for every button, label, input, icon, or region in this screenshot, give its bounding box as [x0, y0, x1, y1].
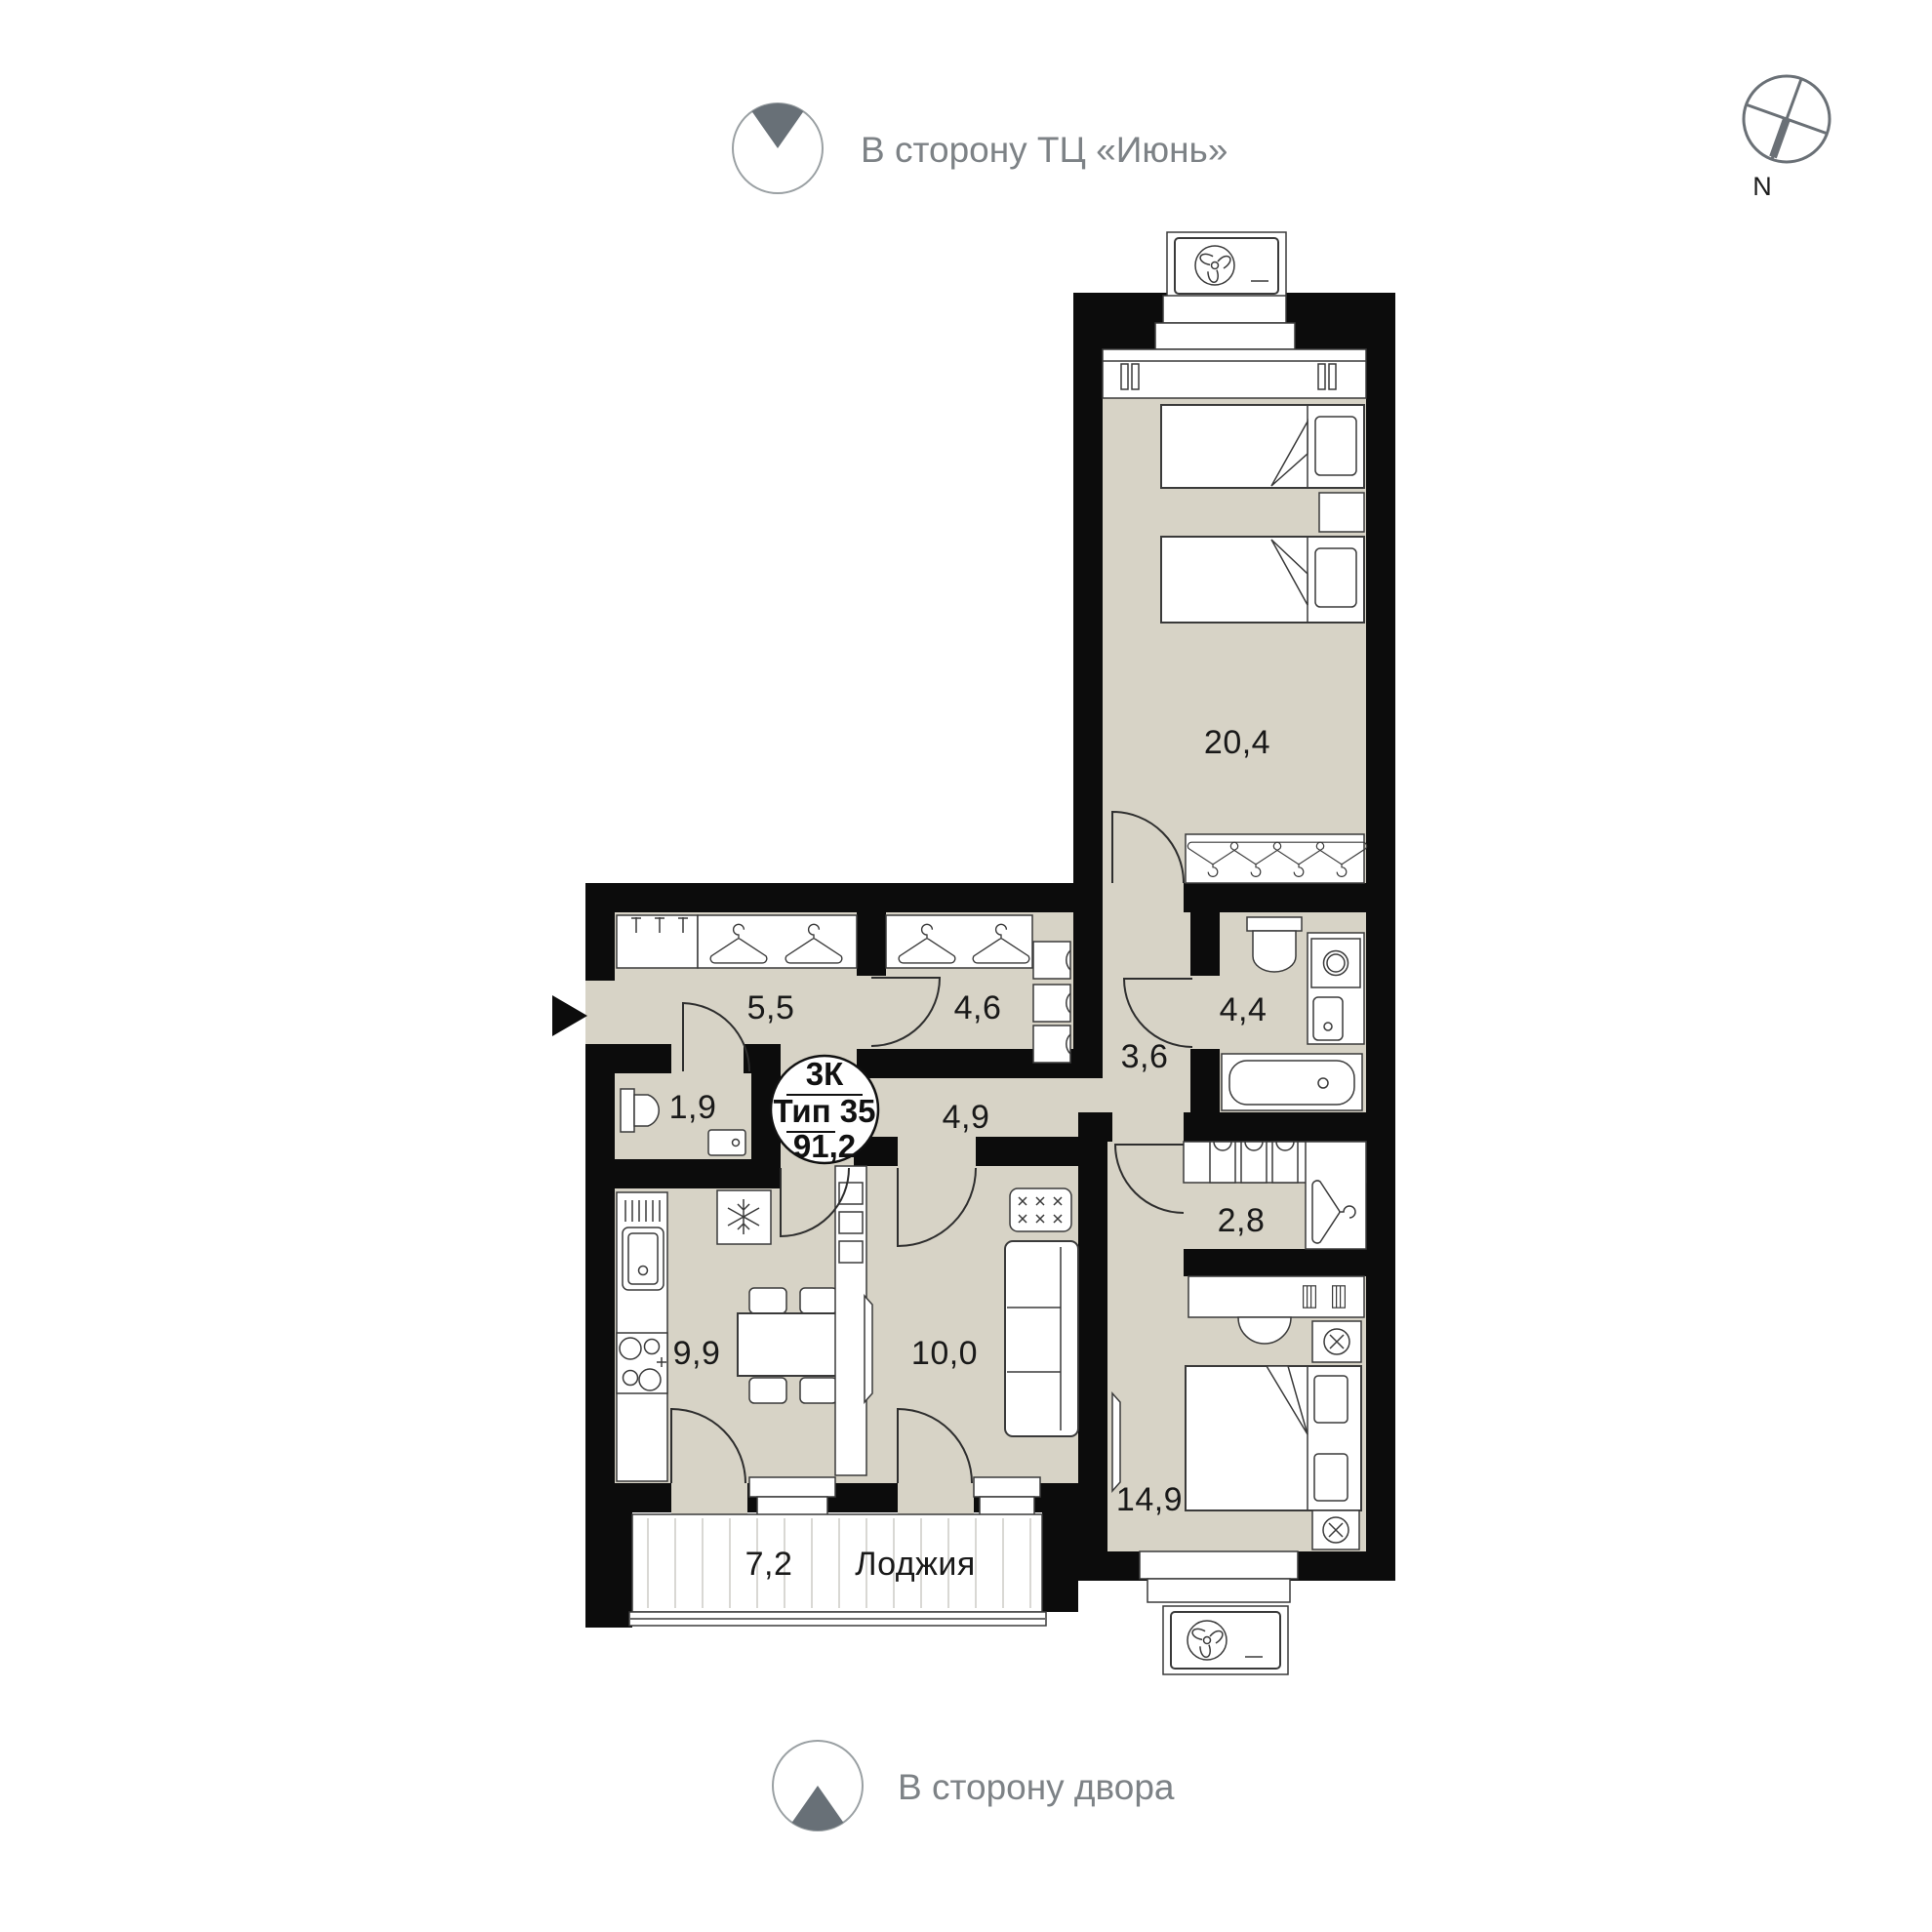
tv-icon: [1112, 1393, 1120, 1491]
direction-top-label: В сторону ТЦ «Июнь»: [861, 130, 1228, 170]
apartment-type-badge: 3К Тип 35 91,2: [771, 1056, 878, 1164]
room-label-wc: 1,9: [669, 1089, 717, 1126]
bedroom-large-window: [1103, 349, 1366, 398]
bed-single-1: [1161, 405, 1364, 488]
room-label-loggia-area: 7,2: [745, 1546, 793, 1583]
shoe-shelf-icon: [1033, 942, 1070, 979]
badge-rooms-type: 3К: [806, 1056, 844, 1092]
room-label-corridor: 3,6: [1121, 1038, 1169, 1075]
room-label-loggia-name: Лоджия: [855, 1546, 975, 1583]
badge-total-area: 91,2: [793, 1128, 856, 1164]
room-label-closet-hall: 4,6: [954, 989, 1002, 1026]
crib: [1010, 1188, 1071, 1231]
sink-icon: [1313, 997, 1343, 1040]
bed-double: [1186, 1366, 1361, 1510]
room-label-inner-hall: 4,9: [943, 1099, 990, 1136]
desk-item-icon: [1304, 1286, 1316, 1308]
direction-bottom: В сторону двора: [773, 1741, 1175, 1831]
bedroom-second-window: [1140, 1551, 1298, 1602]
direction-bottom-label: В сторону двора: [898, 1767, 1175, 1807]
stove-icon: [617, 1333, 667, 1393]
shoe-shelf-icon: [1033, 985, 1070, 1022]
compass-icon: N: [1744, 76, 1830, 201]
entrance-arrow-icon: [552, 995, 587, 1036]
room-label-kitchen: 9,9: [673, 1335, 721, 1372]
sink-icon: [708, 1130, 745, 1155]
bathtub-icon: [1222, 1054, 1362, 1110]
floor-plan-canvas: 20,4 5,5 4,6 4,4 3,6 1,9 4,9 2,8 9,9 10,…: [0, 0, 1932, 1932]
partition-shelf: [835, 1166, 866, 1475]
room-label-walk-in-closet: 2,8: [1218, 1202, 1266, 1239]
compass-north-label: N: [1752, 172, 1772, 201]
nightstand: [1319, 493, 1364, 532]
fridge-icon: [717, 1190, 771, 1244]
desk-item-icon: [1333, 1286, 1346, 1308]
storage-box-icon: [1241, 1142, 1267, 1183]
lamp-icon: [1324, 1329, 1349, 1354]
room-label-bathroom: 4,4: [1220, 991, 1268, 1028]
washing-machine-icon: [1311, 939, 1360, 987]
room-label-living-room: 10,0: [911, 1335, 978, 1372]
room-label-hallway: 5,5: [747, 989, 795, 1026]
ac-unit-top: [1155, 232, 1295, 349]
kitchen-sink-icon: [623, 1228, 664, 1290]
badge-plan-type: Тип 35: [774, 1093, 876, 1129]
storage-box-icon: [1210, 1142, 1235, 1183]
direction-top: В сторону ТЦ «Июнь»: [733, 103, 1228, 193]
tv-icon: [865, 1296, 872, 1402]
toilet-icon: [1247, 917, 1302, 972]
room-label-bedroom-large: 20,4: [1204, 724, 1270, 761]
bed-single-2: [1161, 537, 1364, 623]
storage-box-icon: [1272, 1142, 1298, 1183]
lamp-icon: [1323, 1517, 1348, 1543]
room-label-bedroom-second: 14,9: [1116, 1481, 1183, 1518]
sofa: [1005, 1241, 1078, 1436]
ac-unit-bottom: [1163, 1606, 1288, 1674]
shoe-shelf-icon: [1033, 1026, 1070, 1063]
wardrobe-hangers: [1186, 834, 1367, 883]
